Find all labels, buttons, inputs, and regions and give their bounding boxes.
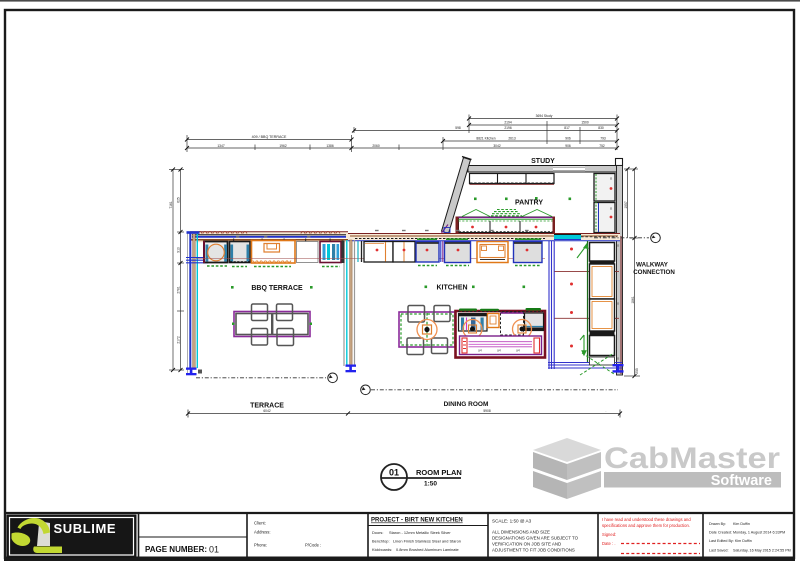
svg-text:598: 598 <box>455 126 461 130</box>
svg-text:255: 255 <box>635 368 639 374</box>
svg-text:Date Created: Monday, 1 August: Date Created: Monday, 1 August 2014 6:33… <box>709 531 785 535</box>
svg-text:specifications and approve the: specifications and approve them for prod… <box>602 523 690 528</box>
svg-text:WALKWAY: WALKWAY <box>636 262 669 269</box>
svg-text:3694 Study: 3694 Study <box>536 114 553 118</box>
svg-text:P/Code :: P/Code : <box>305 543 321 548</box>
svg-text:830: 830 <box>598 126 604 130</box>
svg-text:DINING ROOM: DINING ROOM <box>444 401 489 408</box>
svg-text:Last Edited By: Kim Duffin: Last Edited By: Kim Duffin <box>709 539 752 543</box>
svg-text:Saturday, 16 May 2015 2:24:55: Saturday, 16 May 2015 2:24:55 PM <box>733 549 791 553</box>
svg-text:3042: 3042 <box>493 144 501 148</box>
svg-text:1:50: 1:50 <box>424 481 437 488</box>
svg-text:1962: 1962 <box>279 144 287 148</box>
svg-text:Linen Finish Stainless Steel: Linen Finish Stainless Steel and Staron <box>393 539 461 544</box>
svg-text:1957: 1957 <box>624 201 628 209</box>
svg-text:Kickboards:: Kickboards: <box>372 547 392 552</box>
svg-text:1386: 1386 <box>326 144 334 148</box>
svg-text:ALL DIMENSIONS AND SIZE: ALL DIMENSIONS AND SIZE <box>492 530 550 535</box>
svg-text:2194: 2194 <box>504 121 512 125</box>
svg-text:7161: 7161 <box>169 201 173 209</box>
svg-text:DESIGNATIONS GIVEN ARE SUBJECT: DESIGNATIONS GIVEN ARE SUBJECT TO <box>492 536 579 541</box>
svg-text:Signed:: Signed: <box>602 532 616 537</box>
svg-text:Software: Software <box>711 473 772 489</box>
svg-text:913: 913 <box>177 247 181 253</box>
svg-text:a4: a4 <box>497 349 501 353</box>
svg-text:Staron - 12mm Metallic Sleek S: Staron - 12mm Metallic Sleek Silver <box>389 530 451 535</box>
svg-text:PROJECT - BIRT NEW KITCHEN: PROJECT - BIRT NEW KITCHEN <box>371 518 463 524</box>
svg-text:Drawn By:: Drawn By: <box>709 522 726 526</box>
svg-text:1500: 1500 <box>581 121 589 125</box>
svg-text:Benchtop:: Benchtop: <box>372 539 390 544</box>
svg-text:2613: 2613 <box>508 137 516 141</box>
svg-text:CONNECTION: CONNECTION <box>633 269 675 276</box>
svg-text:STUDY: STUDY <box>531 158 555 165</box>
svg-text:ADJUSTMENT TO FIT JOB CONDITIO: ADJUSTMENT TO FIT JOB CONDITIONS <box>492 548 575 553</box>
svg-text:a4: a4 <box>516 349 520 353</box>
svg-text:2781: 2781 <box>177 286 181 294</box>
svg-text:1861: 1861 <box>631 296 635 304</box>
svg-text:I have read and understood the: I have read and understood these drawing… <box>602 517 691 522</box>
svg-text:2172: 2172 <box>177 336 181 344</box>
svg-text:.: . <box>606 409 607 413</box>
svg-text:SUBLIME: SUBLIME <box>54 521 117 536</box>
svg-text:01: 01 <box>209 545 219 555</box>
svg-text:5908: 5908 <box>483 409 491 413</box>
svg-text:752: 752 <box>599 144 605 148</box>
svg-text:2060: 2060 <box>372 144 380 148</box>
svg-text:0.8mm Brushed Aluminum Laminat: 0.8mm Brushed Aluminum Laminate <box>396 547 459 552</box>
svg-text:793: 793 <box>600 137 606 141</box>
svg-text:PANTRY: PANTRY <box>515 200 543 207</box>
svg-text:BBQ TERRACE: BBQ TERRACE <box>251 285 303 292</box>
svg-text:906: 906 <box>565 137 571 141</box>
svg-text:1347: 1347 <box>217 144 225 148</box>
svg-text:2196: 2196 <box>504 126 512 130</box>
svg-text:6042: 6042 <box>263 409 271 413</box>
svg-text:409 / BBQ TERRACE: 409 / BBQ TERRACE <box>252 135 287 139</box>
svg-text:Date : .: Date : . <box>602 541 616 546</box>
svg-text:01: 01 <box>389 468 399 478</box>
svg-text:a4: a4 <box>478 349 482 353</box>
svg-text:Doors:: Doors: <box>372 530 383 535</box>
svg-text:Last Saved:: Last Saved: <box>709 549 728 553</box>
svg-text:SCALE: 1:50 @ A3: SCALE: 1:50 @ A3 <box>492 519 532 524</box>
svg-text:8821 Kitchen: 8821 Kitchen <box>476 137 495 141</box>
svg-text:KITCHEN: KITCHEN <box>436 285 467 292</box>
svg-text:CabMaster: CabMaster <box>604 442 780 475</box>
svg-text:Client:: Client: <box>254 521 266 526</box>
svg-text:Phone:: Phone: <box>254 543 267 548</box>
svg-text:906: 906 <box>565 144 571 148</box>
svg-text:Kim Duffin: Kim Duffin <box>733 522 750 526</box>
svg-text:625: 625 <box>177 197 181 203</box>
svg-text:ROOM PLAN: ROOM PLAN <box>416 468 462 477</box>
svg-text:VERIFICATION ON JOB SITE AND: VERIFICATION ON JOB SITE AND <box>492 542 561 547</box>
svg-text:Address:: Address: <box>254 530 271 535</box>
svg-text:TERRACE: TERRACE <box>250 403 284 410</box>
svg-text:PAGE NUMBER:: PAGE NUMBER: <box>145 545 207 554</box>
svg-text:817: 817 <box>564 126 570 130</box>
